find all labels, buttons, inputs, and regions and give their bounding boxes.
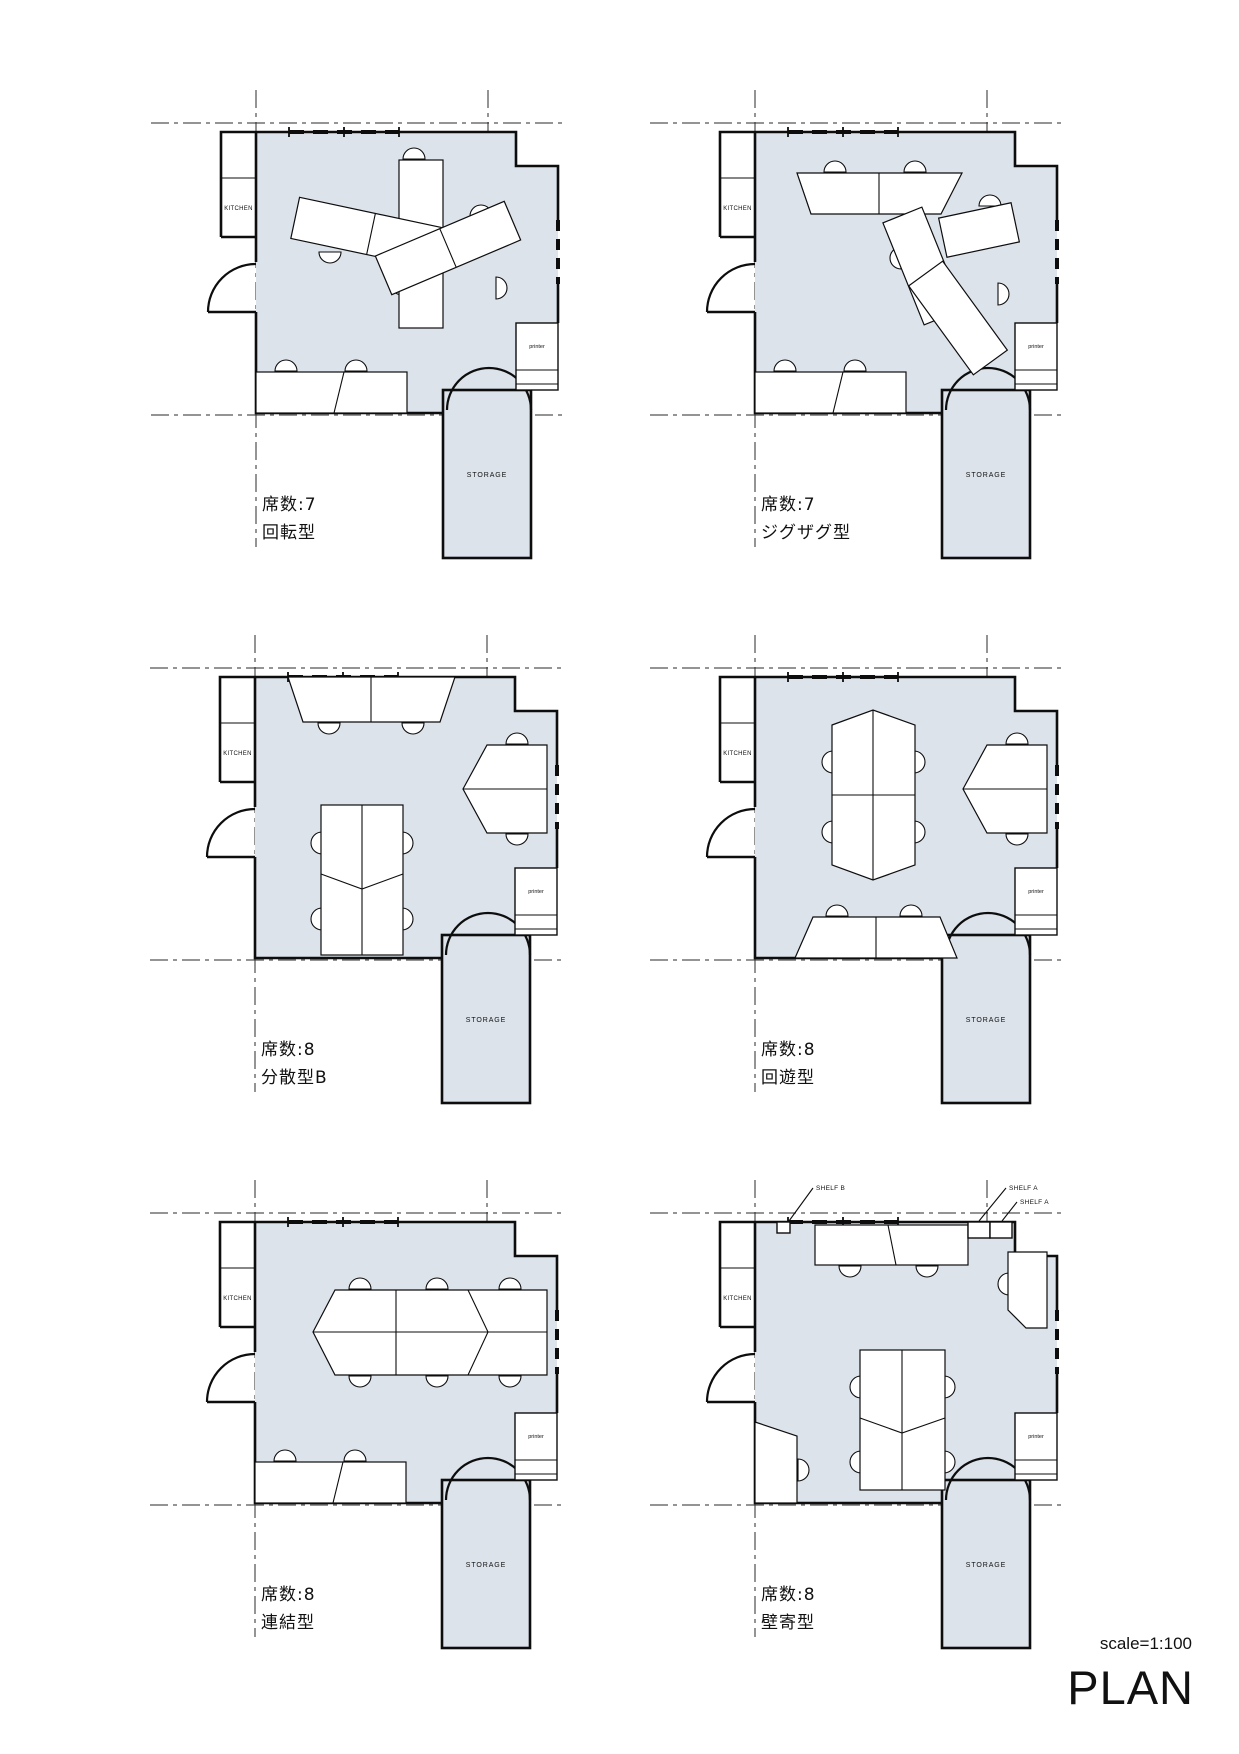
seats-label: 席数:8 bbox=[261, 1040, 316, 1060]
floor-plan-5: 席数:8 連結型 bbox=[145, 1167, 565, 1687]
shelf-a-label-2: SHELF A bbox=[1020, 1199, 1049, 1206]
shelf-a-box-1 bbox=[968, 1222, 990, 1238]
wall-desk-left bbox=[755, 1422, 797, 1503]
floor-plan-6: SHELF B SHELF A SHELF A 席数:8 壁寄型 bbox=[645, 1167, 1065, 1687]
type-label: ジグザグ型 bbox=[761, 523, 851, 543]
scale-note: scale=1:100 bbox=[1100, 1634, 1192, 1654]
seats-label: 席数:8 bbox=[261, 1585, 316, 1605]
plan-sheet: STORAGE KITCHEN bbox=[0, 0, 1239, 1754]
floor-plan-2: 席数:7 ジグザグ型 bbox=[645, 77, 1065, 597]
floor-plan-4: 席数:8 回遊型 bbox=[645, 622, 1065, 1142]
floor-plan-3: 席数:8 分散型B bbox=[145, 622, 565, 1142]
type-label: 回遊型 bbox=[761, 1068, 815, 1088]
sheet-title: PLAN bbox=[1067, 1660, 1194, 1715]
seats-label: 席数:8 bbox=[761, 1585, 816, 1605]
shelf-b-label: SHELF B bbox=[816, 1185, 845, 1192]
type-label: 壁寄型 bbox=[761, 1613, 815, 1633]
shelf-a-box-2 bbox=[990, 1222, 1012, 1238]
shelf-a-label-1: SHELF A bbox=[1009, 1185, 1038, 1192]
type-label: 連結型 bbox=[261, 1613, 315, 1633]
type-label: 回転型 bbox=[262, 523, 316, 543]
seats-label: 席数:8 bbox=[761, 1040, 816, 1060]
floor-plan-1: 席数:7 回転型 bbox=[146, 77, 566, 597]
seats-label: 席数:7 bbox=[761, 495, 816, 515]
type-label: 分散型B bbox=[261, 1068, 328, 1088]
seats-label: 席数:7 bbox=[262, 495, 317, 515]
wall-desk-right bbox=[1008, 1252, 1047, 1328]
shelf-b-box bbox=[777, 1222, 790, 1233]
